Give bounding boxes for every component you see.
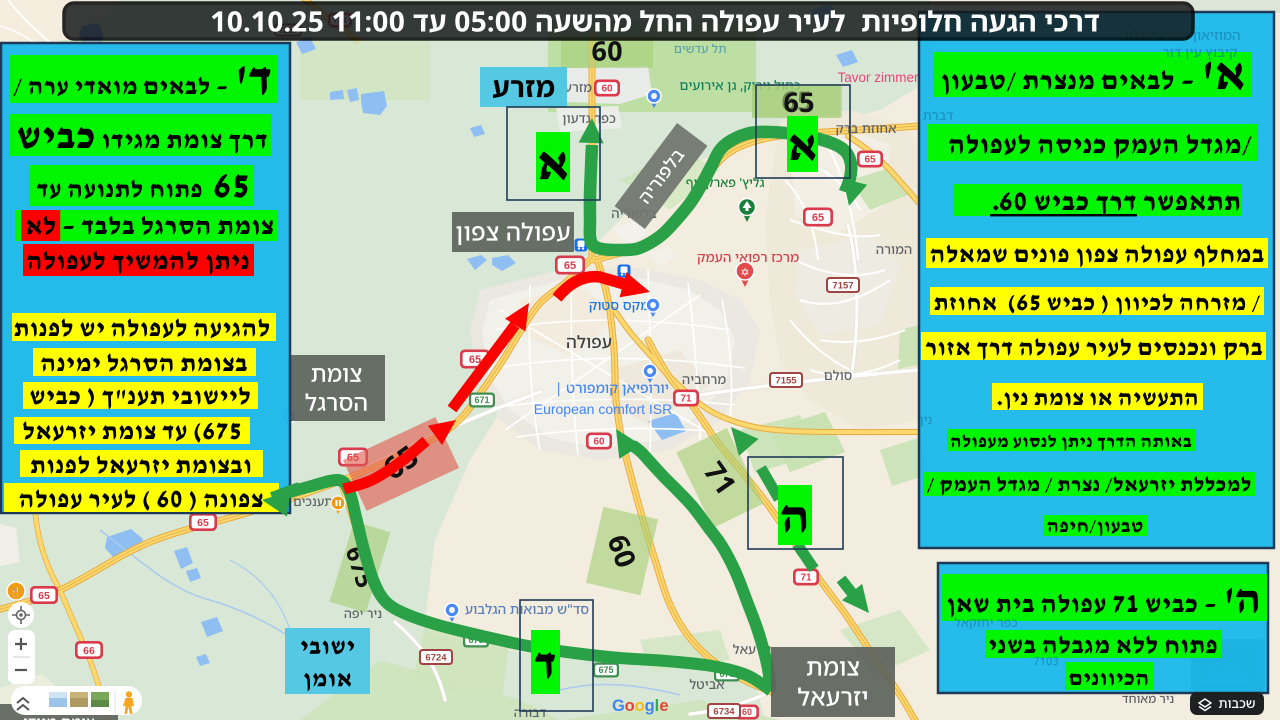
svg-text:675: 675 bbox=[598, 665, 613, 675]
svg-text:60: 60 bbox=[601, 84, 613, 95]
svg-text:60: 60 bbox=[742, 707, 752, 717]
svg-text:671: 671 bbox=[474, 395, 489, 405]
svg-text:7155: 7155 bbox=[775, 375, 797, 386]
svg-text:65: 65 bbox=[197, 517, 209, 529]
svg-text:o: o bbox=[625, 697, 635, 715]
svg-text:o: o bbox=[635, 697, 645, 715]
svg-text:g: g bbox=[645, 697, 655, 715]
svg-text:🍴: 🍴 bbox=[10, 586, 22, 599]
svg-text:66: 66 bbox=[83, 645, 95, 657]
svg-text:e: e bbox=[659, 697, 668, 715]
svg-text:65: 65 bbox=[564, 260, 576, 272]
svg-text:✡: ✡ bbox=[740, 267, 749, 279]
svg-text:7157: 7157 bbox=[832, 280, 853, 291]
svg-text:6724: 6724 bbox=[425, 652, 447, 663]
svg-text:71: 71 bbox=[800, 573, 812, 584]
svg-text:Tavor zimmer: Tavor zimmer bbox=[837, 70, 919, 85]
svg-text:65: 65 bbox=[812, 212, 824, 224]
svg-text:71: 71 bbox=[680, 394, 692, 405]
svg-text:G: G bbox=[612, 697, 625, 715]
svg-text:European comfort ISR: European comfort ISR bbox=[534, 401, 673, 417]
svg-text:65: 65 bbox=[38, 590, 50, 602]
svg-text:60: 60 bbox=[593, 437, 605, 448]
svg-text:6734: 6734 bbox=[713, 706, 735, 717]
svg-text:65: 65 bbox=[864, 155, 876, 166]
